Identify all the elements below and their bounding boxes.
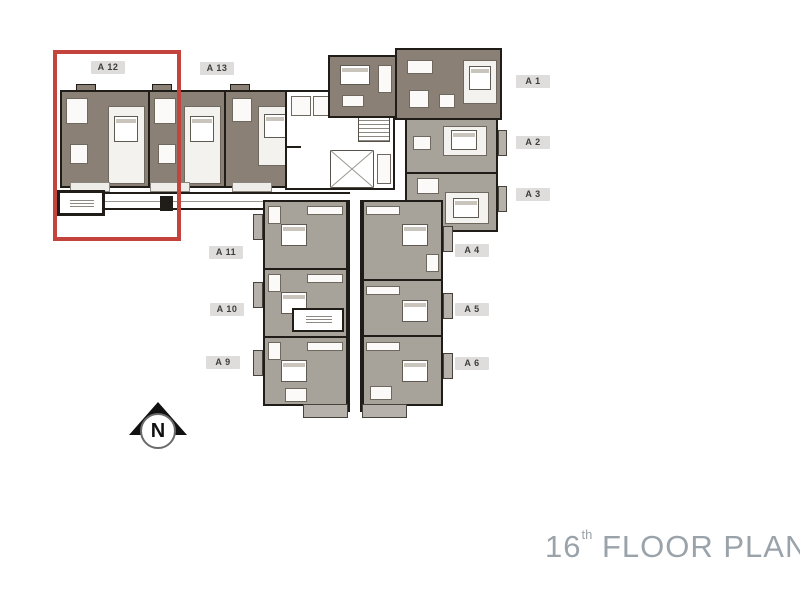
balcony bbox=[443, 293, 453, 319]
bed-icon bbox=[402, 224, 428, 246]
floor-plan-label: FLOOR PLAN bbox=[602, 529, 800, 564]
bed-icon bbox=[402, 360, 428, 382]
unit-a1-block bbox=[395, 48, 502, 120]
balcony bbox=[232, 182, 272, 192]
wall-stub bbox=[287, 146, 301, 148]
bed-icon bbox=[190, 116, 214, 142]
units-a11-a10-a9-block bbox=[263, 200, 348, 406]
bathroom bbox=[268, 274, 281, 292]
table-icon bbox=[285, 388, 307, 402]
balcony bbox=[253, 214, 263, 240]
balcony bbox=[253, 282, 263, 308]
table-icon bbox=[409, 90, 429, 108]
kitchen-counter-icon bbox=[307, 342, 343, 351]
balcony bbox=[443, 226, 453, 252]
unit-a12-highlight-box bbox=[53, 50, 181, 241]
kitchen-counter-icon bbox=[307, 206, 343, 215]
bathroom bbox=[268, 206, 281, 224]
balcony bbox=[498, 186, 507, 212]
north-compass: N bbox=[125, 400, 191, 452]
kitchen-counter-icon bbox=[366, 286, 400, 295]
unit-label-a11[interactable]: A 11 bbox=[209, 246, 243, 259]
bed-icon bbox=[281, 224, 307, 246]
unit-divider-wall bbox=[224, 92, 226, 186]
floor-ordinal-suffix: th bbox=[581, 527, 592, 542]
unit-divider-wall bbox=[364, 279, 441, 281]
unit-label-a3[interactable]: A 3 bbox=[516, 188, 550, 201]
service-room bbox=[377, 154, 391, 184]
floor-number: 16 bbox=[545, 529, 581, 564]
bathroom bbox=[413, 136, 431, 150]
table-icon bbox=[342, 95, 364, 107]
unit-divider-wall bbox=[407, 172, 496, 174]
balcony bbox=[443, 353, 453, 379]
elevator-icon bbox=[291, 96, 311, 116]
unit-label-a9[interactable]: A 9 bbox=[206, 356, 240, 369]
table-icon bbox=[417, 178, 439, 194]
room-label-marks bbox=[306, 316, 332, 325]
closet-bump bbox=[230, 84, 250, 91]
bathroom bbox=[426, 254, 439, 272]
balcony bbox=[498, 130, 507, 156]
bed-icon bbox=[451, 130, 477, 150]
bed-icon bbox=[469, 66, 491, 90]
balcony bbox=[362, 404, 407, 418]
bed-icon bbox=[281, 360, 307, 382]
floor-plan-title: 16th FLOOR PLAN bbox=[545, 527, 795, 565]
elevator-shaft-icon bbox=[330, 150, 374, 188]
bed-icon bbox=[453, 198, 479, 218]
balcony bbox=[253, 350, 263, 376]
floor-plan-canvas: A 12 A 13 A 1 A 2 A 3 A 11 A 10 A 9 A 4 … bbox=[0, 0, 800, 600]
kitchen-counter-icon bbox=[307, 274, 343, 283]
bed-icon bbox=[264, 114, 286, 138]
sofa-icon bbox=[439, 94, 455, 108]
units-a4-a5-a6-block bbox=[362, 200, 443, 406]
balcony bbox=[303, 404, 348, 418]
unit-label-a4[interactable]: A 4 bbox=[455, 244, 489, 257]
kitchen-counter-icon bbox=[407, 60, 433, 74]
unit-label-a6[interactable]: A 6 bbox=[455, 357, 489, 370]
unit-label-a1[interactable]: A 1 bbox=[516, 75, 550, 88]
unit-divider-wall bbox=[265, 336, 346, 338]
wardrobe-icon bbox=[378, 65, 392, 93]
north-label: N bbox=[140, 413, 176, 449]
unit-label-a12[interactable]: A 12 bbox=[91, 61, 125, 74]
table-icon bbox=[370, 386, 392, 400]
bed-icon bbox=[340, 65, 370, 85]
north-letter: N bbox=[151, 420, 165, 442]
unit-divider-wall bbox=[364, 335, 441, 337]
unit-label-a13[interactable]: A 13 bbox=[200, 62, 234, 75]
bed-icon bbox=[402, 300, 428, 322]
utility-room bbox=[292, 308, 344, 332]
end-unit-bathroom bbox=[232, 98, 252, 122]
kitchen-counter-icon bbox=[366, 206, 400, 215]
unit-label-a5[interactable]: A 5 bbox=[455, 303, 489, 316]
kitchen-counter-icon bbox=[366, 342, 400, 351]
lower-wing-corridor bbox=[348, 200, 362, 412]
unit-divider-wall bbox=[265, 268, 346, 270]
unit-label-a10[interactable]: A 10 bbox=[210, 303, 244, 316]
bathroom bbox=[268, 342, 281, 360]
unit-label-a2[interactable]: A 2 bbox=[516, 136, 550, 149]
